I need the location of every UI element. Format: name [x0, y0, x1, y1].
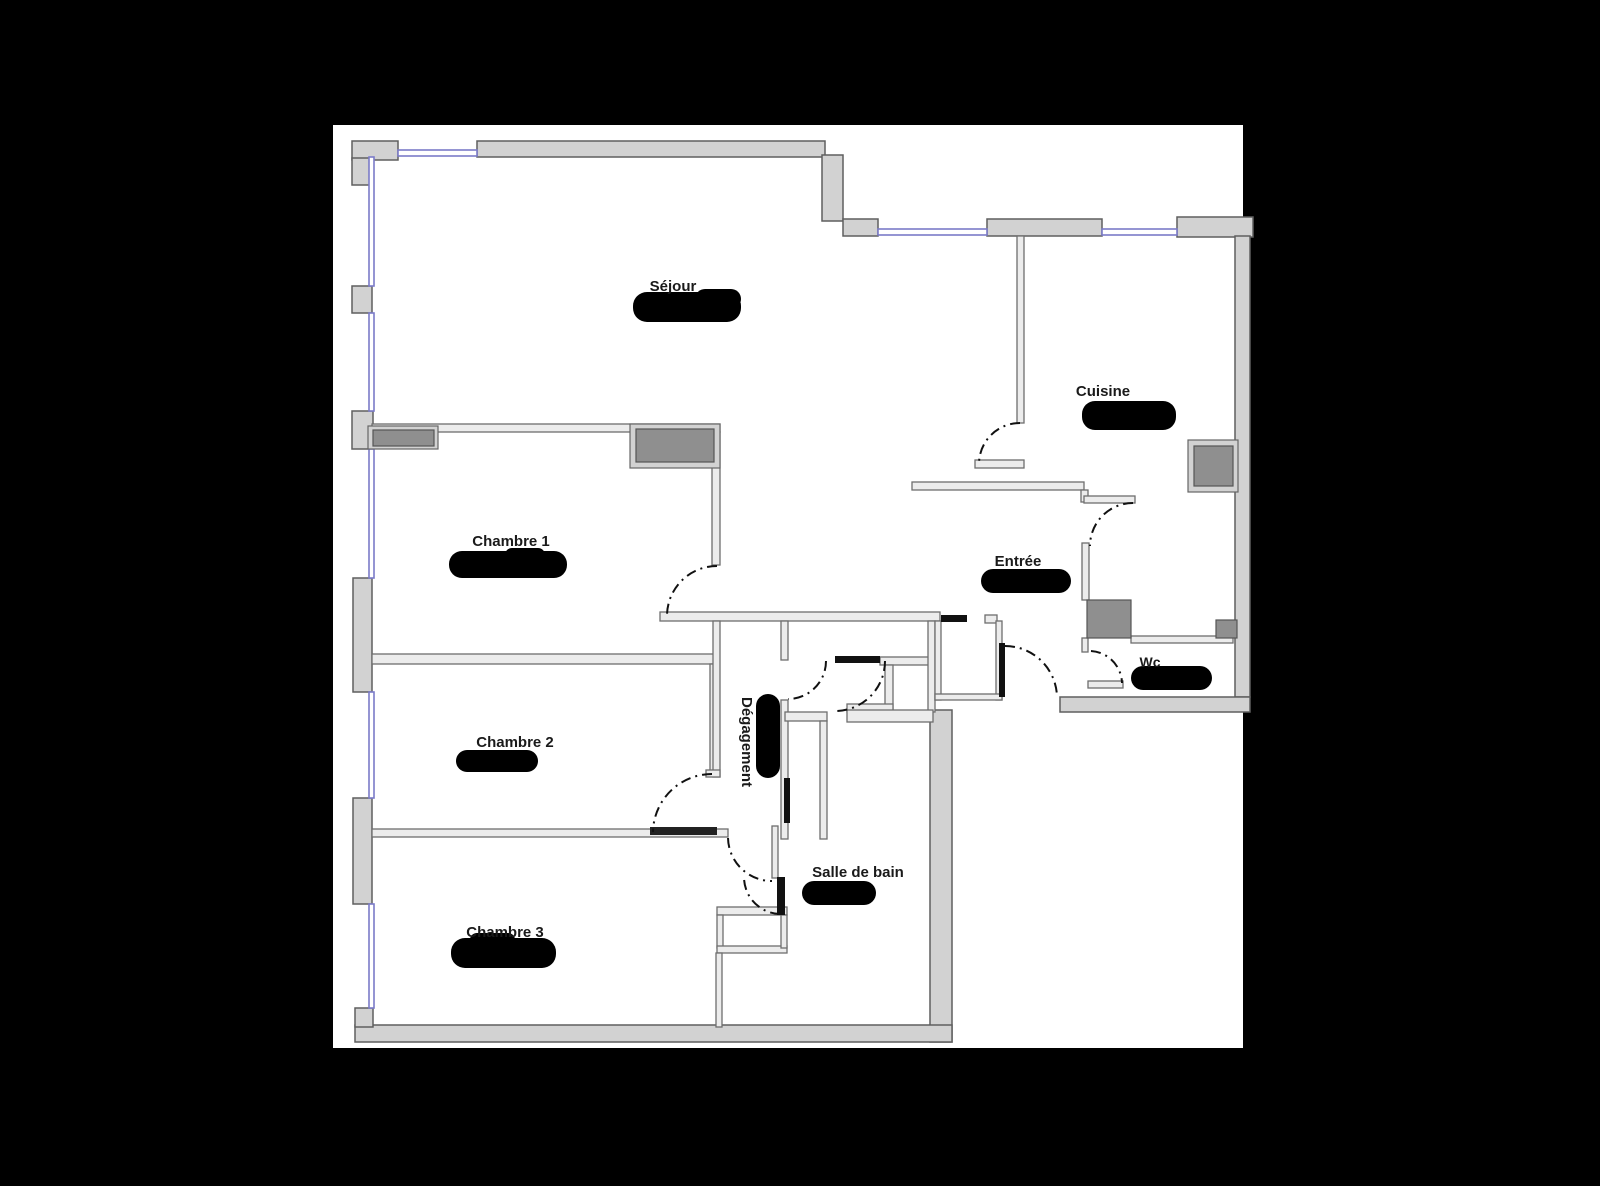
- duct-shaft-entree: [1087, 600, 1131, 638]
- redaction-chambre1-bump: [505, 548, 545, 562]
- radiator-cuisine: [1194, 446, 1233, 486]
- window-cuisine-right: [1102, 229, 1177, 235]
- radiator-wc: [1216, 620, 1237, 638]
- door-leaf-degagement: [784, 778, 790, 823]
- room-label-wc: Wc: [1140, 654, 1161, 670]
- door-leaf-hall: [835, 656, 880, 663]
- window-chambre3-left: [369, 904, 374, 1008]
- window-chambre1-left: [369, 449, 374, 578]
- door-leaf-front-door: [999, 643, 1005, 697]
- room-label-sejour: Séjour: [650, 278, 697, 295]
- floor-plan-drawing: Séjour Cuisine Chambre 1 Entrée Wc Chamb…: [0, 0, 1600, 1186]
- window-sejour-top: [398, 150, 477, 156]
- closet-chambre1-right: [636, 429, 714, 462]
- door-leaf-salle-de-bain: [777, 877, 785, 915]
- window-sejour-left-1: [369, 157, 374, 286]
- floor-plan-page: Séjour Cuisine Chambre 1 Entrée Wc Chamb…: [0, 0, 1600, 1186]
- window-chambre2-left: [369, 692, 374, 798]
- room-label-salle-de-bain: Salle de bain: [812, 864, 904, 881]
- redaction-sejour-bump: [695, 289, 741, 309]
- redaction-degagement: [756, 694, 780, 778]
- redaction-cuisine: [1082, 401, 1176, 430]
- room-label-chambre2: Chambre 2: [476, 734, 554, 751]
- plan-canvas: [333, 125, 1243, 1048]
- room-label-chambre1: Chambre 1: [472, 533, 550, 550]
- room-label-entree: Entrée: [995, 553, 1042, 570]
- room-label-cuisine: Cuisine: [1076, 383, 1130, 400]
- redaction-entree: [981, 569, 1071, 593]
- window-cuisine-left: [878, 229, 987, 235]
- window-sejour-left-2: [369, 313, 374, 411]
- door-leaf-chambre2: [650, 827, 717, 835]
- redaction-chambre2: [456, 750, 538, 772]
- redaction-salle-de-bain: [802, 881, 876, 905]
- radiator-chambre1-left: [373, 430, 434, 446]
- room-label-degagement: Dégagement: [738, 697, 755, 787]
- door-leaf-closet: [941, 615, 967, 622]
- room-label-chambre3: Chambre 3: [466, 924, 544, 941]
